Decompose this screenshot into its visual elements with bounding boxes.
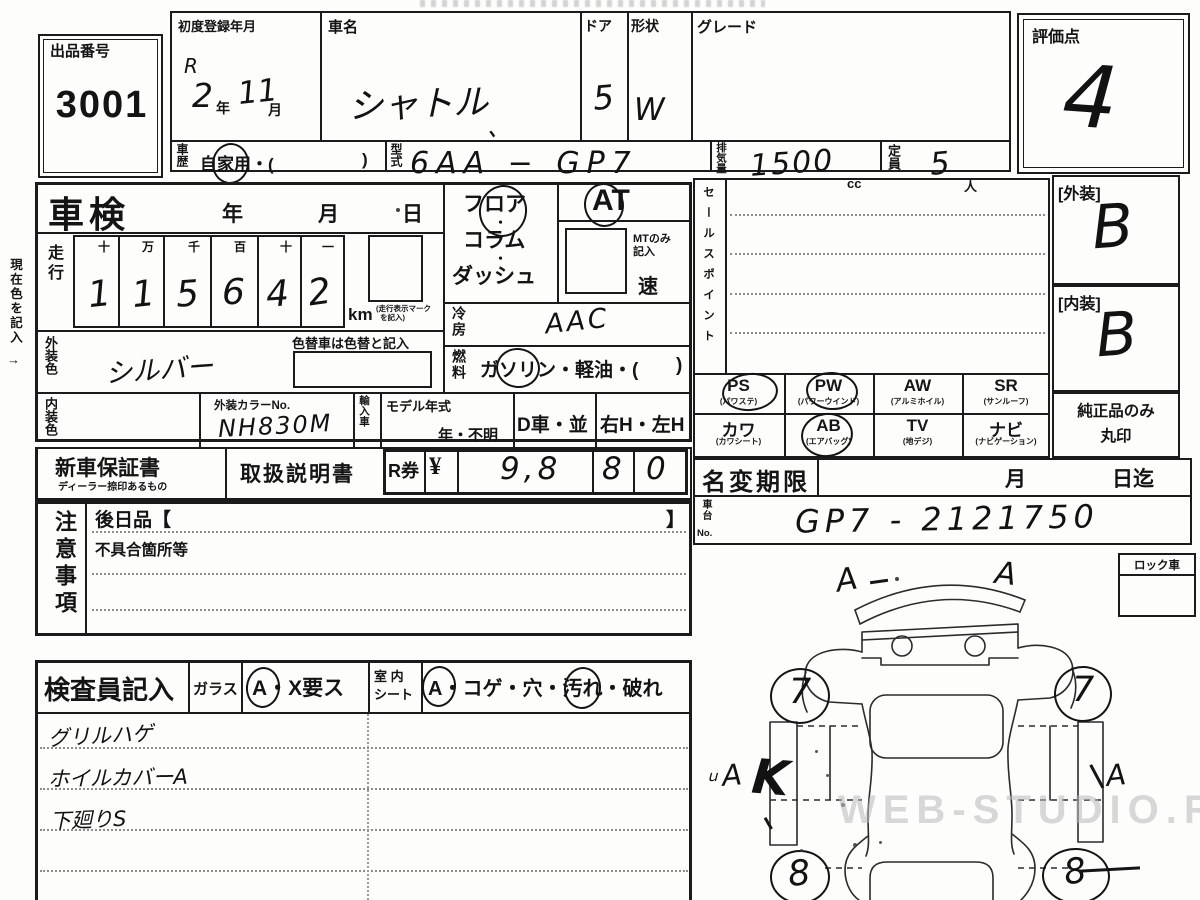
history-label: 車歴: [174, 143, 191, 173]
chassis-label-no: No.: [697, 528, 712, 539]
handle-position: 右H・左H: [600, 410, 684, 437]
equip-navi-name: (ナビゲーション): [962, 436, 1050, 447]
import-label: 輸入車: [357, 395, 372, 445]
equip-kawa-name: (カワシート): [693, 436, 784, 447]
inspector-line: [40, 870, 688, 872]
inspector-label: 検査員記入: [44, 670, 174, 707]
odo-header-1: 万: [142, 238, 154, 255]
odo-digit-0: 1: [86, 273, 113, 316]
inspector-note-2: 下廻りS: [49, 803, 126, 836]
lock-car-label: ロック車: [1118, 557, 1196, 573]
transfer-month: 月: [1005, 463, 1026, 493]
color-no-label: 外装カラーNo.: [214, 397, 290, 413]
sales-line: [730, 293, 1045, 295]
shape-value: W: [634, 92, 665, 128]
odo-digit-3: 6: [222, 272, 245, 313]
repaint-note: 色替車は色替と記入: [292, 333, 409, 352]
auction-sheet: 出品番号 3001 初度登録年月 R 2 年 11 月 車名 シャトル 、 ドア…: [0, 0, 1200, 900]
mileage-mark-box: [368, 235, 423, 302]
watermark: WEB-STUDIO.RU: [838, 788, 1200, 833]
ext-color-value: シルバー: [104, 344, 214, 390]
unit-month: 月: [268, 100, 282, 120]
car-name-value: シャトル: [347, 74, 489, 130]
yen-symbol: ¥: [429, 453, 442, 481]
glass-label: ガラス: [193, 678, 238, 699]
model-year-label: モデル年式: [386, 396, 451, 415]
caution-label: 注意事項: [48, 510, 80, 630]
manual-label: 取扱説明書: [240, 458, 355, 488]
later-items-label: 後日品【: [95, 505, 171, 532]
fee-digits-1: 9,8: [500, 451, 561, 487]
r-ticket-label: R券: [388, 457, 419, 483]
odo-header-2: 千: [188, 238, 200, 255]
seat-label-1: 室 内: [374, 666, 404, 685]
equip-aw-name: (アルミホイル): [873, 396, 962, 407]
sales-line: [730, 332, 1045, 334]
transfer-label: 名変期限: [702, 462, 810, 497]
first-reg-era: R: [184, 54, 198, 78]
wheel-mark-front-left: 7: [789, 672, 811, 712]
score-label: 評価点: [1032, 23, 1080, 47]
caution-line: [92, 609, 686, 611]
inspector-divider: [367, 714, 369, 900]
seat-label-2: シート: [374, 684, 413, 703]
fuel-paren-close: ): [676, 355, 682, 377]
capacity-label: 定員: [884, 144, 903, 174]
model-code-label: 型式: [388, 143, 405, 173]
equip-sr: SR: [962, 376, 1050, 396]
interior-grade: B: [1094, 299, 1140, 372]
wheel-mark-rear-left: 8: [786, 853, 812, 895]
diagram-mark-top-right: A: [993, 555, 1018, 593]
defect-label: 不具合箇所等: [95, 538, 188, 560]
equip-tv-name: (地デジ): [873, 436, 962, 447]
int-color-label: 内装色: [41, 397, 60, 443]
odo-digit-2: 5: [175, 273, 201, 315]
mt-note-2: 記入: [633, 243, 655, 259]
mt-speed-unit: 速: [638, 270, 658, 299]
later-items-close: 】: [666, 505, 685, 532]
odometer-boxes: [73, 235, 345, 328]
sales-line: [730, 214, 1045, 216]
door-label: ドア: [584, 16, 612, 36]
shape-label: 形状: [631, 16, 659, 36]
equip-tv: TV: [873, 416, 962, 436]
fee-digits-3: 0: [646, 451, 666, 487]
odo-header-0: 十: [98, 238, 110, 255]
diagram-mark-left-small: ｕ: [705, 765, 720, 786]
dealer-car: D車・並: [517, 410, 588, 437]
color-no-value: NH830M: [217, 409, 333, 443]
odo-header-5: 一: [322, 238, 334, 255]
warranty-sub: ディーラー捺印あるもの: [58, 478, 167, 493]
sales-line: [730, 253, 1045, 255]
first-reg-year: 2: [192, 76, 213, 115]
genuine-note-1: 純正品のみ: [1052, 399, 1180, 421]
inspector-note-0: グリルハゲ: [47, 717, 153, 752]
displacement-label: 排気量: [714, 142, 729, 172]
equip-sr-name: (サンルーフ): [962, 396, 1050, 407]
unit-year: 年: [216, 98, 230, 118]
lot-number-label: 出品番号: [50, 40, 110, 61]
chassis-label-kanji: 車台: [698, 499, 713, 525]
model-code-value: 6AA − GP7: [410, 146, 638, 181]
odo-header-4: 十: [280, 238, 292, 255]
shaken-year: 年: [222, 198, 243, 228]
mt-box: [565, 228, 627, 294]
transfer-due: 日迄: [1112, 463, 1154, 493]
car-name-label: 車名: [328, 16, 358, 37]
inspector-note-1: ホイルカバーA: [48, 761, 188, 793]
shaken-label: 車検: [48, 186, 130, 238]
fuel-label: 燃料: [449, 349, 469, 385]
exterior-grade: B: [1090, 191, 1136, 264]
shaken-day: 日: [402, 198, 423, 228]
odo-digit-4: 4: [265, 273, 291, 315]
ac-label: 冷房: [449, 306, 469, 342]
diagram-mark-left-k: K: [750, 748, 792, 807]
score-value: 4: [1060, 46, 1122, 150]
ext-color-label: 外装色: [41, 336, 60, 390]
diagram-mark-left-a: A: [721, 757, 744, 793]
margin-note-arrow: →: [7, 352, 20, 367]
door-value: 5: [591, 77, 615, 118]
lot-number-value: 3001: [52, 84, 152, 127]
inspector-line: [40, 829, 688, 831]
scan-artifact: [420, 0, 765, 7]
seat-value: A・コゲ・穴・汚れ・破れ: [428, 672, 662, 701]
sales-point-label: セールスポイント: [700, 186, 716, 366]
caution-line: [92, 573, 686, 575]
odo-digit-1: 1: [130, 273, 157, 316]
fee-digits-2: 8: [602, 451, 622, 487]
genuine-note-2: 丸印: [1052, 424, 1180, 446]
first-reg-label: 初度登録年月: [178, 16, 256, 35]
history-paren-close: ): [362, 150, 368, 170]
grade-label: グレード: [697, 16, 757, 37]
repaint-box: [293, 351, 432, 388]
margin-note: 現在色を記入: [6, 258, 25, 354]
shift-dash: ダッシュ: [452, 260, 536, 290]
pen-mark: 、: [487, 108, 511, 143]
shaken-month: 月: [318, 198, 339, 228]
caution-line: [92, 531, 686, 533]
chassis-number: GP7 - 2121750: [795, 497, 1099, 540]
mileage-label: 走行: [41, 244, 65, 314]
model-year-value: 年・不明: [438, 424, 498, 445]
odo-header-3: 百: [234, 238, 246, 255]
km-label: km: [348, 305, 373, 325]
equip-aw: AW: [873, 376, 962, 396]
wheel-mark-front-right: 7: [1072, 670, 1094, 710]
km-note-2: を記入): [380, 312, 405, 323]
